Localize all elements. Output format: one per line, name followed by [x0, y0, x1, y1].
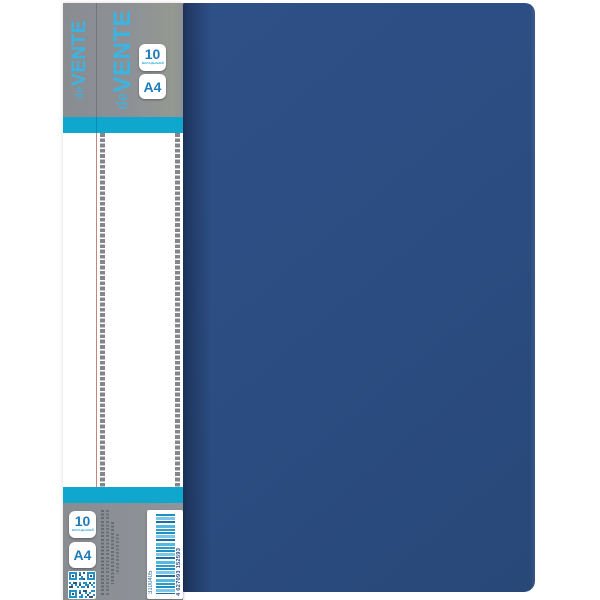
- brand-name: VENTE: [69, 20, 90, 86]
- brand-logo-left: deVENTE: [63, 7, 96, 113]
- fine-print-line: [101, 510, 104, 596]
- brand-prefix: de: [74, 86, 86, 100]
- fold-seam-cyan-top: [96, 117, 97, 133]
- format-badge-top: A4: [139, 74, 166, 99]
- spine-top-panel: deVENTE deVENTE 10 ВКЛАДЫШЕЙ A4: [63, 3, 183, 117]
- capacity-badge-bottom: 10 ВКЛАДЫШЕЙ: [69, 511, 96, 538]
- accent-strip-bottom: [63, 487, 183, 503]
- fine-print-text: [101, 510, 119, 598]
- checker-dark-column-right: [175, 133, 180, 487]
- ean-number: 4 627093 152593: [177, 514, 183, 596]
- checkered-pattern: [63, 133, 183, 487]
- capacity-value: 10: [145, 47, 161, 61]
- barcode-icon: [156, 514, 175, 594]
- fine-print-line: [106, 510, 109, 596]
- format-value: A4: [144, 80, 162, 94]
- spine-insert: deVENTE deVENTE 10 ВКЛАДЫШЕЙ A4 10 В: [63, 3, 183, 600]
- capacity-subtitle: ВКЛАДЫШЕЙ: [142, 62, 164, 65]
- article-number: 3100405: [148, 516, 154, 594]
- folder-cover: [183, 3, 535, 592]
- barcode-label: 3100405 4 627093 152593: [147, 510, 183, 599]
- fine-print-line: [116, 534, 119, 574]
- brand-prefix: de: [115, 93, 131, 110]
- capacity-value: 10: [75, 514, 91, 528]
- brand-logo-right: deVENTE: [103, 7, 143, 113]
- folder-edge-highlight: [530, 3, 535, 592]
- qr-code-icon: [68, 571, 96, 599]
- fold-seam-red-line: [96, 133, 97, 487]
- checker-dark-column-middle: [100, 133, 105, 487]
- folder-spine-shadow: [183, 3, 211, 592]
- format-value: A4: [74, 548, 92, 562]
- accent-strip-top: [63, 117, 183, 133]
- capacity-badge-top: 10 ВКЛАДЫШЕЙ: [139, 44, 166, 71]
- capacity-subtitle: ВКЛАДЫШЕЙ: [72, 529, 94, 532]
- fold-seam-top: [96, 3, 97, 117]
- fine-print-line: [111, 522, 114, 584]
- brand-name: VENTE: [109, 10, 136, 93]
- format-badge-bottom: A4: [69, 542, 96, 568]
- product-photo: deVENTE deVENTE 10 ВКЛАДЫШЕЙ A4 10 В: [0, 0, 600, 600]
